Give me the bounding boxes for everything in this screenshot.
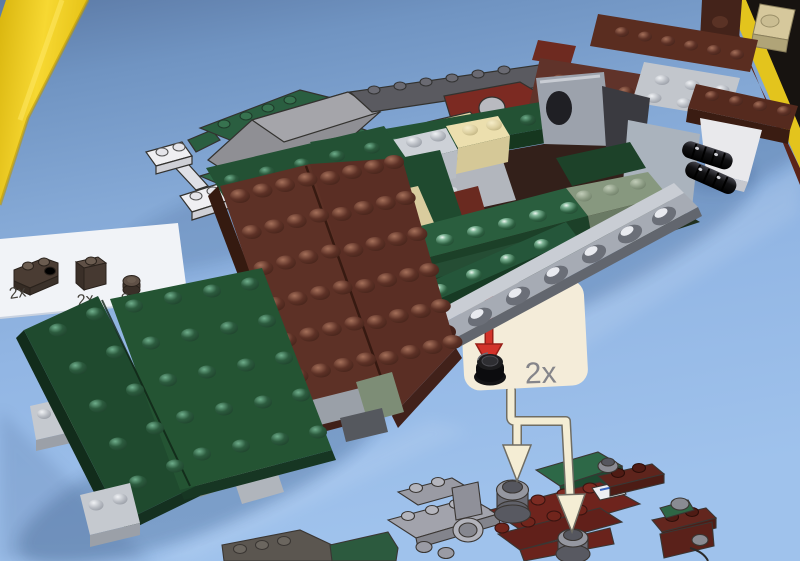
stud: [401, 345, 421, 359]
stud: [310, 286, 330, 300]
stud: [298, 173, 318, 187]
stud: [234, 545, 247, 554]
stud: [262, 104, 274, 112]
stud: [472, 70, 484, 78]
stud: [389, 309, 409, 323]
stud: [237, 359, 255, 372]
stud: [603, 185, 619, 196]
stud: [407, 227, 427, 241]
stud: [446, 74, 458, 82]
stud: [343, 243, 363, 257]
stud: [365, 237, 385, 251]
stud: [271, 433, 289, 446]
stud: [534, 239, 550, 251]
stud: [278, 537, 291, 546]
stud: [431, 299, 451, 313]
stud: [254, 396, 272, 409]
stud: [387, 232, 407, 246]
printed-gray-barrel-hole: [459, 523, 477, 537]
stud: [661, 36, 675, 46]
stud: [320, 171, 340, 185]
stud: [288, 292, 308, 306]
stud: [309, 209, 329, 223]
stud: [633, 464, 646, 473]
printed-gray-round: [438, 548, 454, 559]
stud: [730, 50, 744, 60]
stud: [159, 374, 177, 387]
stud: [173, 143, 185, 151]
stud: [426, 506, 439, 515]
stud: [218, 120, 230, 128]
stud: [729, 96, 743, 106]
stud: [230, 189, 250, 203]
stud: [753, 101, 767, 111]
stud: [467, 226, 485, 238]
stud: [402, 512, 415, 521]
stud: [531, 495, 545, 505]
stud: [377, 273, 397, 287]
stud: [342, 165, 362, 179]
stud: [287, 214, 307, 228]
stud: [284, 96, 296, 104]
stud: [113, 494, 128, 505]
stud: [547, 511, 561, 521]
stud: [89, 400, 107, 413]
stud: [368, 86, 380, 94]
stud: [240, 112, 252, 120]
stud: [777, 106, 791, 116]
stud: [462, 125, 478, 136]
stud: [198, 366, 216, 379]
stud: [630, 179, 646, 190]
stud: [332, 207, 352, 221]
stud: [420, 78, 432, 86]
stud: [242, 225, 262, 239]
stud: [707, 45, 721, 55]
stud: [498, 218, 516, 230]
stud: [356, 353, 376, 367]
stud: [89, 500, 104, 511]
stud: [399, 268, 419, 282]
stud: [466, 269, 482, 281]
stud: [309, 426, 327, 439]
stud: [146, 422, 164, 435]
stud: [705, 91, 719, 101]
stud: [410, 484, 423, 493]
printed-gray-brick: [452, 482, 482, 520]
stud: [126, 384, 144, 397]
stud: [258, 315, 276, 328]
printed-gray-round: [416, 542, 432, 553]
stud: [430, 131, 446, 142]
stud: [376, 196, 396, 210]
stud: [379, 351, 399, 365]
part-count-label: 2x: [8, 284, 27, 303]
stud: [69, 362, 87, 375]
stud: [354, 201, 374, 215]
stud: [364, 160, 384, 174]
stud: [164, 292, 182, 305]
stud: [529, 210, 547, 222]
stud: [443, 335, 463, 349]
stud: [560, 202, 578, 214]
stud: [436, 234, 454, 246]
stud: [156, 148, 168, 156]
stud: [500, 254, 516, 266]
stud: [355, 279, 375, 293]
stud: [275, 352, 293, 365]
stud: [384, 155, 404, 169]
stud: [615, 27, 629, 37]
stud: [203, 285, 221, 298]
stud: [193, 448, 211, 461]
part-brick-1x1: [76, 257, 106, 290]
stud: [256, 541, 269, 550]
stud: [142, 337, 160, 350]
stud: [419, 263, 439, 277]
stud: [292, 389, 310, 402]
printed-round-stack-target: [556, 529, 590, 561]
stud: [276, 256, 296, 270]
stud: [432, 478, 445, 487]
stud: [394, 82, 406, 90]
stud: [364, 143, 380, 154]
stud: [684, 41, 698, 51]
photo-of-lego-instruction-page: 2x 2x 8x: [0, 0, 800, 561]
stud: [322, 322, 342, 336]
callout-count-label: 2x: [524, 356, 557, 390]
printed-round-stack-target: [495, 480, 531, 523]
stud: [215, 403, 233, 416]
stud: [241, 278, 259, 291]
stud: [329, 151, 345, 162]
stud: [321, 245, 341, 259]
stud: [125, 300, 143, 313]
stud: [220, 322, 238, 335]
stud: [232, 440, 250, 453]
stud: [253, 184, 273, 198]
stud: [311, 364, 331, 378]
stud: [520, 115, 536, 126]
stud: [411, 304, 431, 318]
stud: [396, 191, 416, 205]
stud: [334, 358, 354, 372]
stud: [109, 438, 127, 451]
stud: [166, 460, 184, 473]
stud: [298, 250, 318, 264]
stud: [655, 75, 670, 85]
stud: [275, 178, 295, 192]
stud: [181, 329, 199, 342]
stud: [176, 411, 194, 424]
stud: [638, 32, 652, 42]
stud: [498, 66, 510, 74]
stud: [576, 191, 592, 202]
stud: [486, 120, 502, 131]
stud: [423, 340, 443, 354]
stud: [367, 315, 387, 329]
stud: [106, 346, 124, 359]
stud: [49, 324, 67, 337]
stud: [264, 220, 284, 234]
stud: [190, 192, 202, 200]
stud: [37, 409, 51, 419]
stud: [406, 137, 422, 148]
stud: [86, 308, 104, 321]
stud: [344, 317, 364, 331]
stud: [129, 476, 147, 489]
stud: [333, 281, 353, 295]
stud: [299, 328, 319, 342]
stud: [495, 523, 509, 533]
gray-arch-piece: [536, 72, 612, 146]
